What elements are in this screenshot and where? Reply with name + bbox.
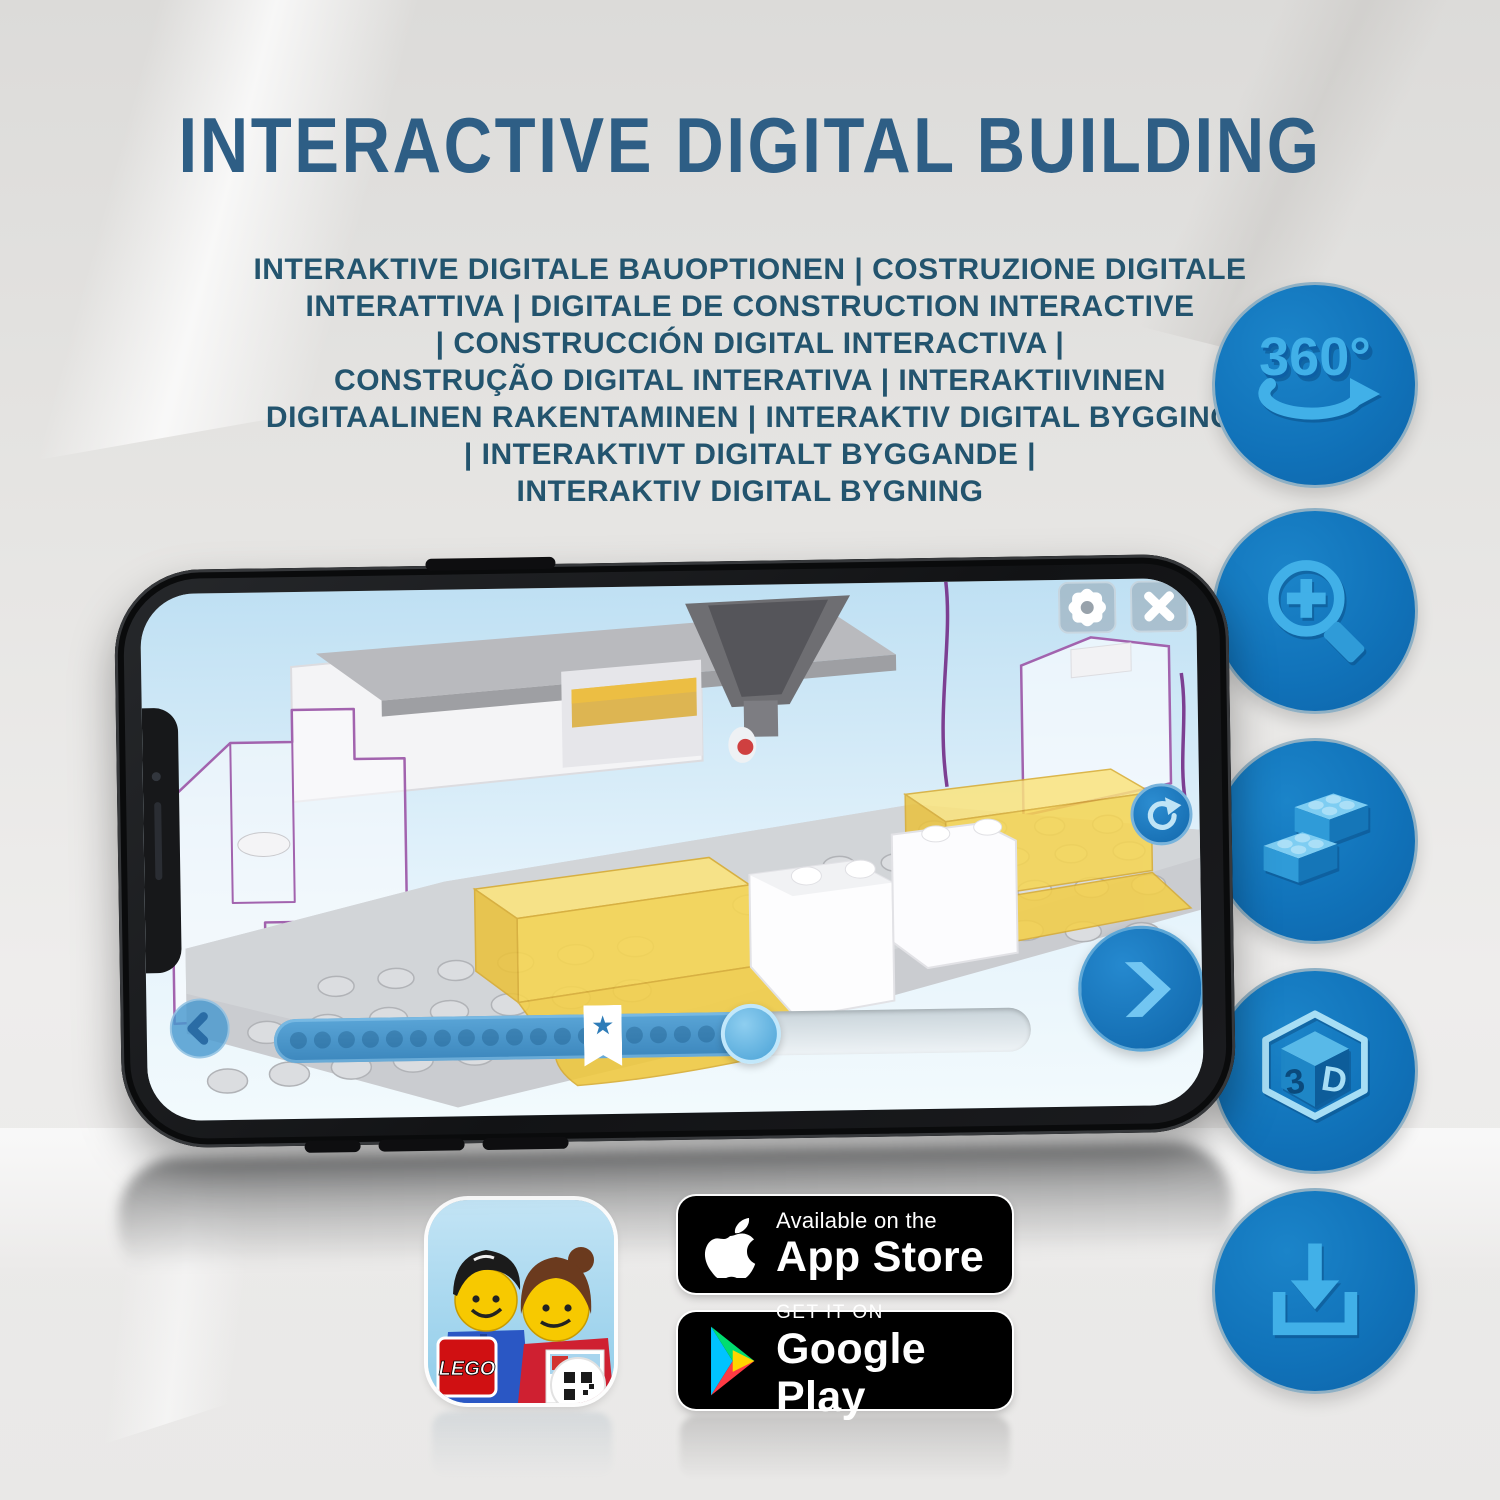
subtitle-line: INTERATTIVA | DIGITALE DE CONSTRUCTION I…	[150, 288, 1350, 325]
app-screen: ★	[140, 578, 1204, 1122]
close-button[interactable]	[1130, 580, 1189, 633]
app-store-tagline: Available on the	[776, 1209, 984, 1233]
app-store-badge[interactable]: Available on the App Store	[678, 1196, 1012, 1293]
3d-cube-icon: 3 D	[1252, 1008, 1378, 1134]
chevron-left-icon	[179, 1008, 220, 1049]
chevron-right-icon	[1092, 940, 1189, 1037]
slider-dot	[386, 1030, 403, 1047]
svg-text:360°: 360°	[1259, 327, 1371, 387]
phone-volume-button	[378, 1138, 464, 1151]
slider-dot	[314, 1031, 331, 1048]
subtitle-block: INTERAKTIVE DIGITALE BAUOPTIONEN | COSTR…	[150, 251, 1350, 510]
next-step-button[interactable]	[1077, 925, 1204, 1053]
slider-dot	[410, 1030, 427, 1047]
feature-3d-badge: 3 D	[1212, 968, 1418, 1174]
feature-zoom-badge	[1212, 508, 1418, 714]
svg-text:LEGO: LEGO	[439, 1358, 496, 1380]
slider-dot	[530, 1028, 547, 1045]
app-store-name: App Store	[776, 1233, 984, 1281]
page-title: INTERACTIVE DIGITAL BUILDING	[105, 100, 1395, 191]
slider-dot	[362, 1031, 379, 1048]
rotate-icon	[1138, 791, 1185, 838]
phone-notch	[142, 708, 182, 974]
subtitle-line: DIGITAALINEN RAKENTAMINEN | INTERAKTIV D…	[150, 399, 1350, 436]
subtitle-line: CONSTRUÇÃO DIGITAL INTERATIVA | INTERAKT…	[150, 362, 1350, 399]
feature-download-badge	[1212, 1188, 1418, 1394]
google-play-name: Google Play	[776, 1325, 1012, 1421]
phone-mockup: ★	[114, 553, 1237, 1148]
subtitle-line: | INTERAKTIVT DIGITALT BYGGANDE |	[150, 436, 1350, 473]
front-camera	[152, 772, 161, 781]
slider-dot	[698, 1025, 715, 1042]
lego-app-art: LEGO	[428, 1200, 614, 1403]
phone-power-button	[425, 557, 555, 571]
subtitle-line: INTERAKTIVE DIGITALE BAUOPTIONEN | COSTR…	[150, 251, 1350, 288]
settings-button[interactable]	[1058, 581, 1117, 634]
google-play-icon	[702, 1322, 758, 1400]
svg-text:D: D	[1319, 1059, 1350, 1101]
apple-icon	[702, 1212, 758, 1278]
phone-mute-switch	[305, 1140, 361, 1153]
gear-icon	[1065, 585, 1110, 630]
google-play-tagline: GET IT ON	[776, 1301, 1012, 1325]
feature-brick-badge	[1212, 738, 1418, 944]
feature-360-badge: 360° 360°	[1212, 282, 1418, 488]
slider-dot	[290, 1032, 307, 1049]
download-icon	[1252, 1228, 1378, 1354]
phone-volume-button	[482, 1137, 568, 1150]
slider-dot	[650, 1026, 667, 1043]
subtitle-line: | CONSTRUCCIÓN DIGITAL INTERACTIVA |	[150, 325, 1350, 362]
google-play-badge[interactable]: GET IT ON Google Play	[678, 1312, 1012, 1409]
slider-dot	[458, 1029, 475, 1046]
badge-reflection	[680, 1416, 1010, 1480]
zoom-in-icon	[1252, 548, 1378, 674]
marketing-image: INTERACTIVE DIGITAL BUILDING INTERAKTIVE…	[0, 0, 1500, 1500]
rotate-view-button[interactable]	[1130, 783, 1193, 846]
lego-app-icon[interactable]: LEGO	[428, 1200, 614, 1403]
phone-reflection	[117, 1141, 1233, 1288]
lego-brick-icon	[1252, 778, 1378, 904]
360-rotation-icon: 360° 360°	[1248, 318, 1382, 452]
slider-dot	[506, 1028, 523, 1045]
slider-dot	[674, 1026, 691, 1043]
slider-dot	[434, 1030, 451, 1047]
subtitle-line: INTERAKTIV DIGITAL BYGNING	[150, 473, 1350, 510]
earpiece-speaker	[154, 802, 162, 880]
slider-dot	[482, 1029, 499, 1046]
badge-reflection	[432, 1412, 612, 1478]
slider-dot	[338, 1031, 355, 1048]
slider-dot	[554, 1028, 571, 1045]
slider-dot	[626, 1027, 643, 1044]
